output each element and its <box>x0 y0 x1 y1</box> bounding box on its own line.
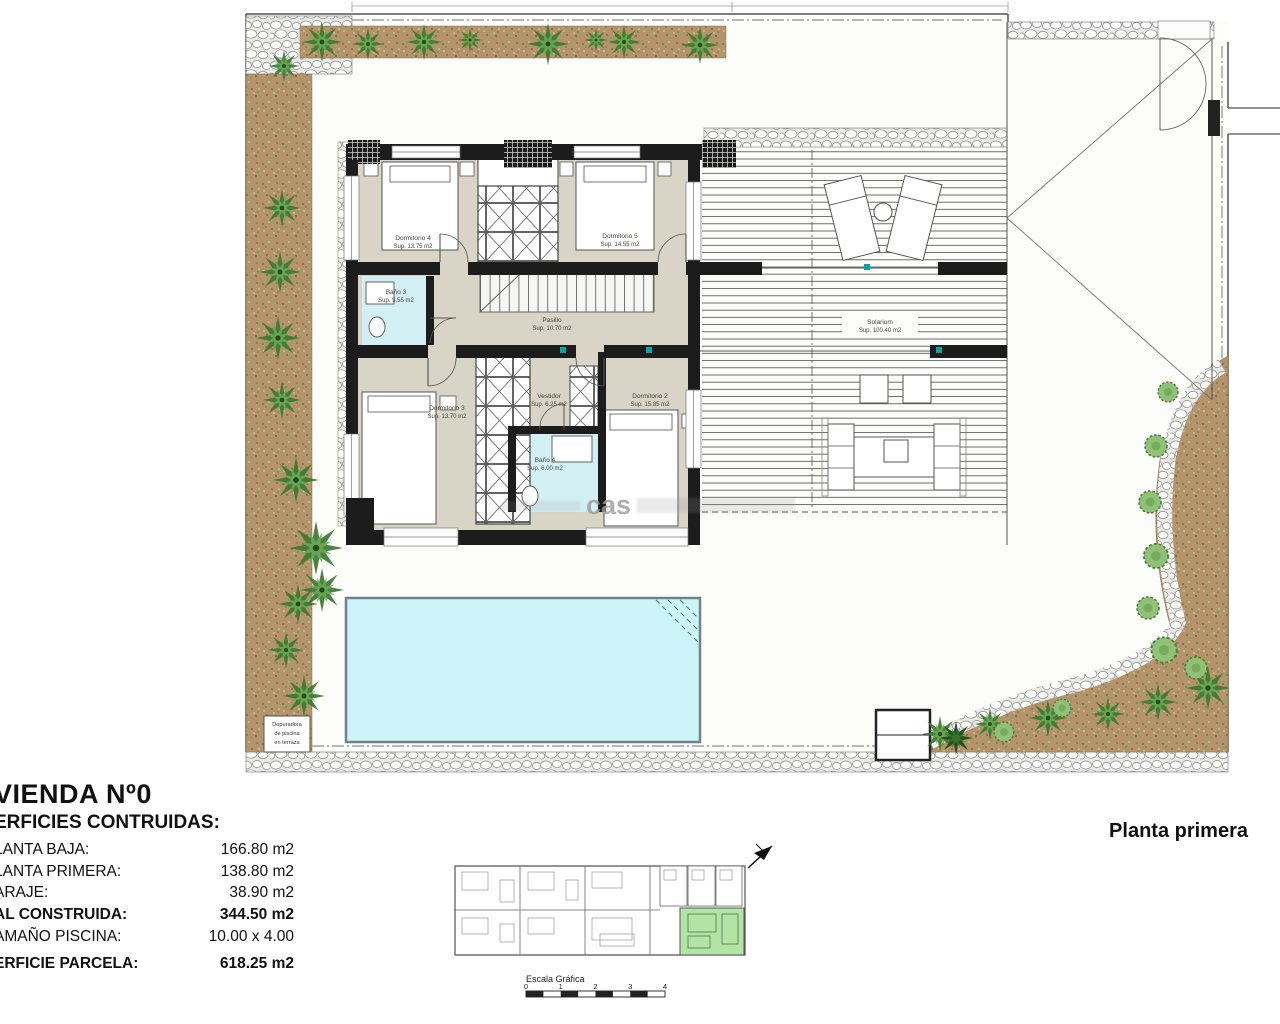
floor-label: Planta primera <box>1109 820 1248 843</box>
scale-bar: Escala Gráfica 0 1 2 3 4 <box>524 974 667 997</box>
light-marker <box>936 347 942 353</box>
room-label: Dormitorio 2 <box>632 393 668 400</box>
note-line: en terraza <box>274 740 300 746</box>
watermark-faint <box>500 501 580 511</box>
room-area: Sup. 15.85 m2 <box>630 402 670 408</box>
scale-tick: 2 <box>593 982 597 991</box>
row-value: 138.80 m2 <box>144 863 294 881</box>
staircase <box>480 272 654 312</box>
row-label: AL CONSTRUIDA: <box>0 906 127 924</box>
house <box>344 140 736 546</box>
room-label: Pasillo <box>542 317 562 324</box>
room-label: Baño 3 <box>386 289 407 296</box>
north-arrow <box>748 844 772 868</box>
room-area: Sup. 10.70 m2 <box>532 326 572 332</box>
room-area: Sup. 13.70 m2 <box>427 414 467 420</box>
room-label: Dormitorio 4 <box>395 235 431 242</box>
room-area: Sup. 13.75 m2 <box>393 244 433 250</box>
page-title: VIENDA Nº0 <box>0 779 152 810</box>
light-marker <box>560 347 566 353</box>
watermark: cas <box>500 492 795 519</box>
watermark-faint <box>637 498 795 513</box>
row-value: 344.50 m2 <box>144 906 294 924</box>
side-table <box>903 375 931 403</box>
summary-row: ERFICIE PARCELA: 618.25 m2 <box>0 955 296 975</box>
scale-title: Escala Gráfica <box>526 974 585 984</box>
row-label: ERFICIE PARCELA: <box>0 955 138 973</box>
dark-plant <box>939 721 973 755</box>
row-label: LANTA BAJA: <box>0 841 89 859</box>
floor-plan-page: Depuradora de piscina en terraza Dormito… <box>0 0 1280 1024</box>
room-area: Sup. 14.55 m2 <box>600 242 640 248</box>
row-label: ARAJE: <box>0 884 48 902</box>
row-value: 166.80 m2 <box>144 841 294 859</box>
room-label: Solarium <box>867 319 893 326</box>
pool-note: Depuradora de piscina en terraza <box>264 716 310 752</box>
scale-tick: 0 <box>524 982 528 991</box>
row-value: 618.25 m2 <box>144 955 294 973</box>
key-plan: Escala Gráfica 0 1 2 3 4 <box>455 844 772 997</box>
room-area: Sup. 100.40 m2 <box>859 328 902 334</box>
row-value: 38.90 m2 <box>144 884 294 902</box>
summary-row: AL CONSTRUIDA: 344.50 m2 <box>0 906 296 926</box>
light-marker <box>646 347 652 353</box>
room-area: Sup. 6.25 m2 <box>531 402 567 408</box>
room-area: Sup. 5.55 m2 <box>378 298 414 304</box>
note-line: de piscina <box>274 731 300 737</box>
scale-tick: 4 <box>663 982 667 991</box>
watermark-text: cas <box>586 492 631 519</box>
scale-tick: 1 <box>559 982 563 991</box>
row-value: 10.00 x 4.00 <box>144 928 294 946</box>
summary-row: ARAJE: 38.90 m2 <box>0 884 296 904</box>
note-line: Depuradora <box>272 722 302 728</box>
summary-row: AMAÑO PISCINA: 10.00 x 4.00 <box>0 928 296 948</box>
light-marker <box>864 264 870 270</box>
row-label: AMAÑO PISCINA: <box>0 928 121 946</box>
room-area: Sup. 6.00 m2 <box>527 466 563 472</box>
summary-row: LANTA PRIMERA: 138.80 m2 <box>0 863 296 883</box>
side-table <box>860 375 888 403</box>
room-label: Dormitorio 5 <box>602 233 638 240</box>
scale-tick: 3 <box>628 982 632 991</box>
summary-row: LANTA BAJA: 166.80 m2 <box>0 841 296 861</box>
row-label: LANTA PRIMERA: <box>0 863 121 881</box>
room-label: Baño 4 <box>535 457 556 464</box>
room-label: Dormitorio 3 <box>429 405 465 412</box>
room-label: Vestidor <box>537 393 561 400</box>
summary-panel: VIENDA Nº0 ERFICIES CONTRUIDAS: LANTA BA… <box>0 779 304 989</box>
swimming-pool <box>346 598 700 742</box>
summary-subtitle: ERFICIES CONTRUIDAS: <box>0 812 220 834</box>
